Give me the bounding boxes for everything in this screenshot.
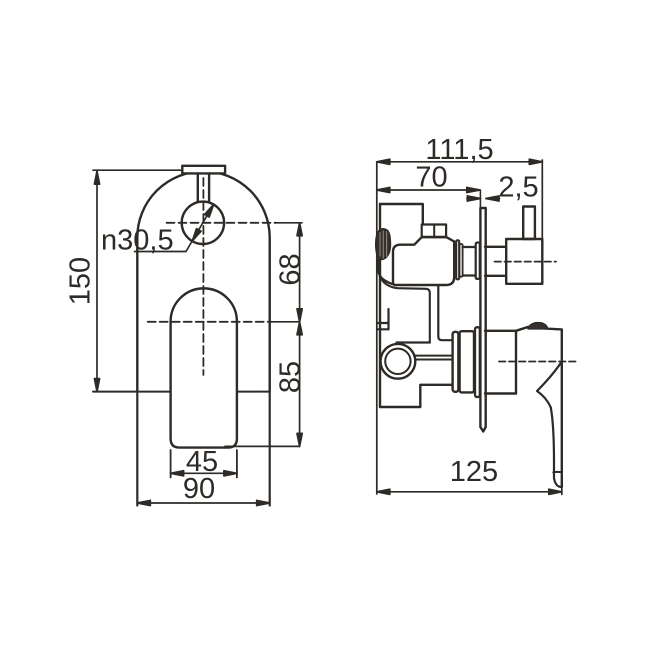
svg-text:n30,5: n30,5 xyxy=(101,225,174,257)
svg-text:2,5: 2,5 xyxy=(498,172,538,204)
svg-text:70: 70 xyxy=(415,162,447,194)
svg-text:125: 125 xyxy=(450,456,498,488)
svg-text:85: 85 xyxy=(275,361,307,393)
svg-text:150: 150 xyxy=(65,257,97,305)
svg-text:90: 90 xyxy=(183,473,215,505)
svg-text:68: 68 xyxy=(275,253,307,285)
